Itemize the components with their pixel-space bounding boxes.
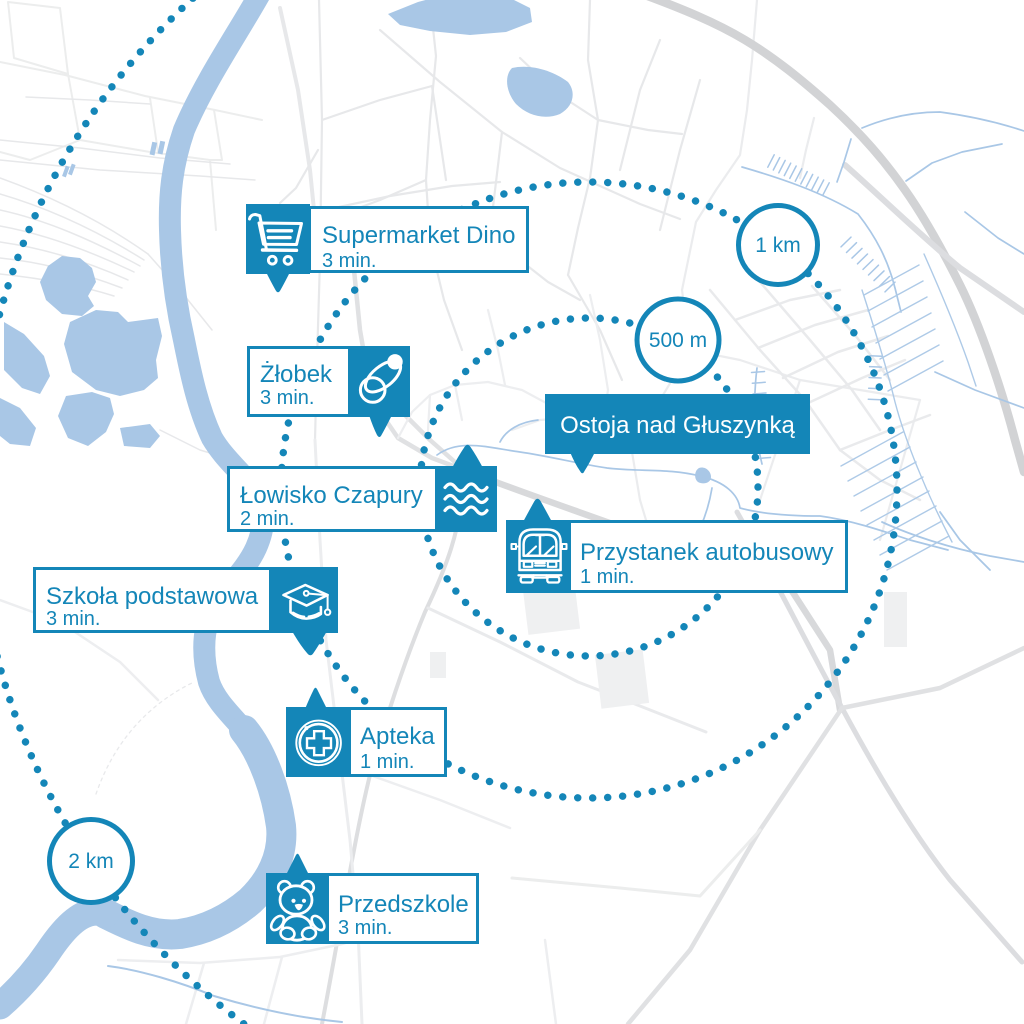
svg-text:Szkoła podstawowa: Szkoła podstawowa: [46, 583, 259, 610]
svg-text:3 min.: 3 min.: [322, 250, 376, 272]
svg-text:3 min.: 3 min.: [260, 387, 314, 409]
svg-text:1 km: 1 km: [755, 234, 801, 257]
svg-text:1 min.: 1 min.: [580, 566, 634, 588]
svg-text:Supermarket Dino: Supermarket Dino: [322, 222, 515, 249]
svg-text:500 m: 500 m: [649, 329, 707, 352]
svg-text:Apteka: Apteka: [360, 723, 435, 750]
svg-text:Ostoja nad Głuszynką: Ostoja nad Głuszynką: [560, 412, 795, 439]
svg-text:2 km: 2 km: [68, 850, 114, 873]
svg-text:Łowisko Czapury: Łowisko Czapury: [240, 482, 423, 509]
svg-text:Przedszkole: Przedszkole: [338, 891, 469, 918]
svg-text:1 min.: 1 min.: [360, 751, 414, 773]
svg-text:3 min.: 3 min.: [338, 917, 392, 939]
svg-text:Przystanek autobusowy: Przystanek autobusowy: [580, 539, 833, 566]
svg-text:Żłobek: Żłobek: [260, 361, 333, 388]
svg-text:2 min.: 2 min.: [240, 508, 294, 530]
svg-text:3 min.: 3 min.: [46, 608, 100, 630]
